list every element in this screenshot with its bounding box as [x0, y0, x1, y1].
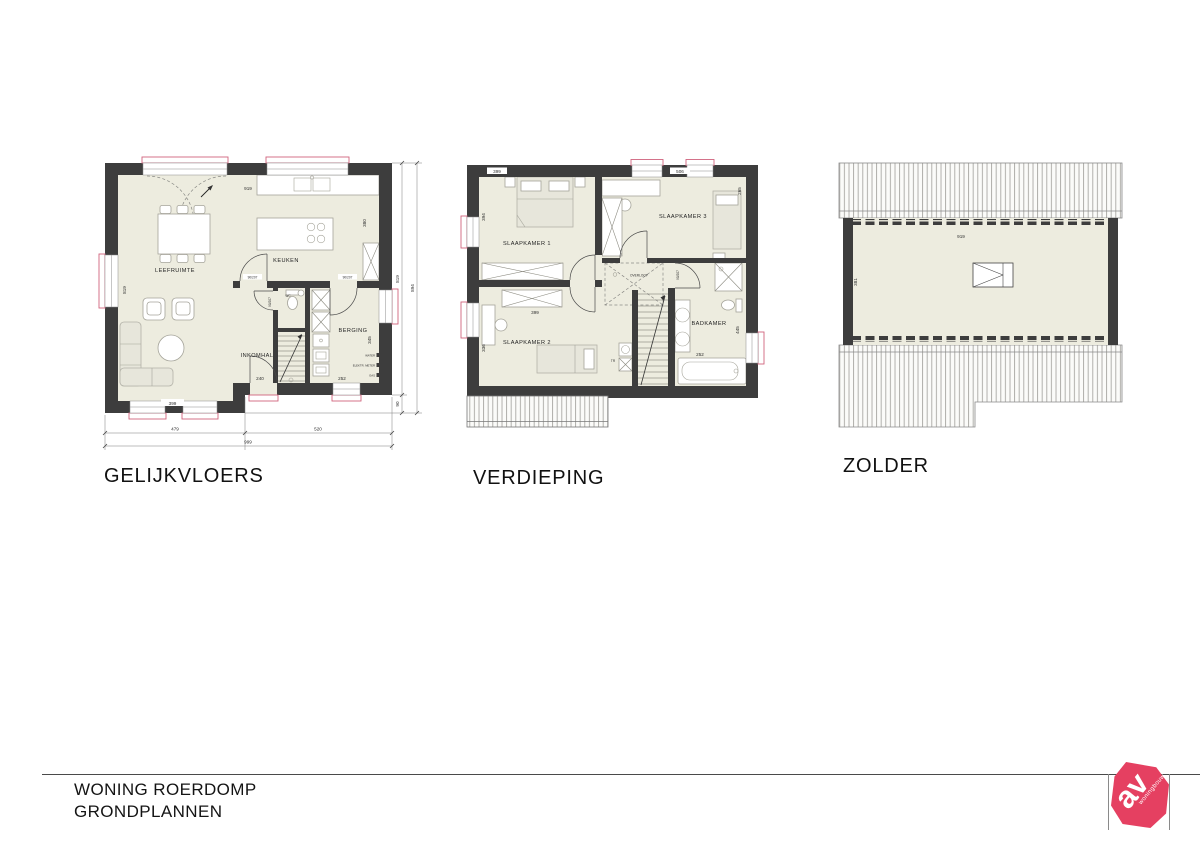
dim-bath-height: 445: [735, 326, 740, 334]
door-label: 90/207: [248, 275, 258, 279]
door-label: 90/207: [268, 297, 272, 307]
project-title: WONING ROERDOMP: [74, 779, 257, 801]
room-label-berging: BERGING: [339, 328, 368, 334]
dim-hall-width: 240: [256, 376, 264, 381]
room-label-overloop: OVERLOOP: [630, 274, 648, 278]
door-label: 90/207: [343, 275, 353, 279]
drawing-title: GRONDPLANNEN: [74, 801, 257, 823]
dim-bottom-left: 479: [171, 427, 179, 432]
dim-right-outer: 894: [410, 284, 415, 292]
meter-label-elektr: ELEKTR. METER: [353, 364, 375, 368]
titleblock-logo-border-right: [1169, 774, 1170, 830]
company-logo: av woningbouw: [1111, 762, 1169, 828]
dim-bed3-width: 506: [676, 169, 684, 174]
dim-bed2-width: 399: [531, 310, 539, 315]
dim-left-height: 819: [122, 286, 127, 294]
dim-attic-depth: 381: [853, 278, 858, 286]
dim-bed3-height: 265: [737, 187, 742, 195]
dim-right-inner: 819: [395, 275, 400, 283]
meter-label-gas: GAS: [369, 374, 375, 378]
dim-bottom-total: 999: [244, 440, 252, 445]
dim-bed1-width: 399: [493, 169, 501, 174]
titleblock-divider: [42, 774, 1200, 775]
room-label-slaapkamer1: SLAAPKAMER 1: [503, 241, 551, 247]
room-label-leefruimte: LEEFRUIMTE: [155, 268, 195, 274]
room-label-tr: TR: [611, 359, 616, 363]
door-label: 90/207: [676, 270, 680, 280]
entrance-door-sill: [249, 395, 278, 401]
titleblock-text: WONING ROERDOMP GRONDPLANNEN: [74, 779, 257, 823]
dim-bed1-height: 394: [481, 213, 486, 221]
dim-bath-width: 252: [696, 352, 704, 357]
room-label-inkomhal: INKOMHAL: [241, 353, 274, 359]
titleblock-logo-border-left: [1108, 774, 1109, 830]
dim-right-offset: 90: [395, 401, 400, 407]
verdieping-porch-roof: [467, 396, 608, 427]
dim-attic-width: 919: [957, 234, 965, 239]
room-label-wc: WC: [285, 294, 291, 298]
dim-bed2-height: 336: [481, 344, 486, 352]
dim-bottom-right: 520: [314, 427, 322, 432]
floorplan-sheet: { "title_block": { "line1": "WONING ROER…: [0, 0, 1200, 848]
zolder-roof-hatch: [973, 263, 1013, 287]
zolder-title: ZOLDER: [843, 455, 929, 478]
room-label-badkamer: BADKAMER: [692, 321, 727, 327]
room-label-slaapkamer3: SLAAPKAMER 3: [659, 214, 707, 220]
dim-living-width: 399: [169, 401, 177, 406]
gelijkvloers-title: GELIJKVLOERS: [104, 465, 264, 488]
zolder-floorplan: 919 381: [825, 155, 1135, 445]
dim-kitchen-depth: 380: [362, 219, 367, 227]
dim-top-width: 919: [244, 186, 252, 191]
room-label-slaapkamer2: SLAAPKAMER 2: [503, 340, 551, 346]
dim-storage-height: 345: [367, 336, 372, 344]
meter-label-water: WATER: [365, 354, 375, 358]
verdieping-title: VERDIEPING: [473, 467, 604, 490]
room-label-keuken: KEUKEN: [273, 258, 299, 264]
verdieping-floorplan: SLAAPKAMER 1 SLAAPKAMER 2 SLAAPKAMER 3 B…: [455, 155, 765, 445]
dim-storage-width: 252: [338, 376, 346, 381]
gelijkvloers-floorplan: LEEFRUIMTE KEUKEN INKOMHAL BERGING WC 90…: [90, 150, 440, 460]
